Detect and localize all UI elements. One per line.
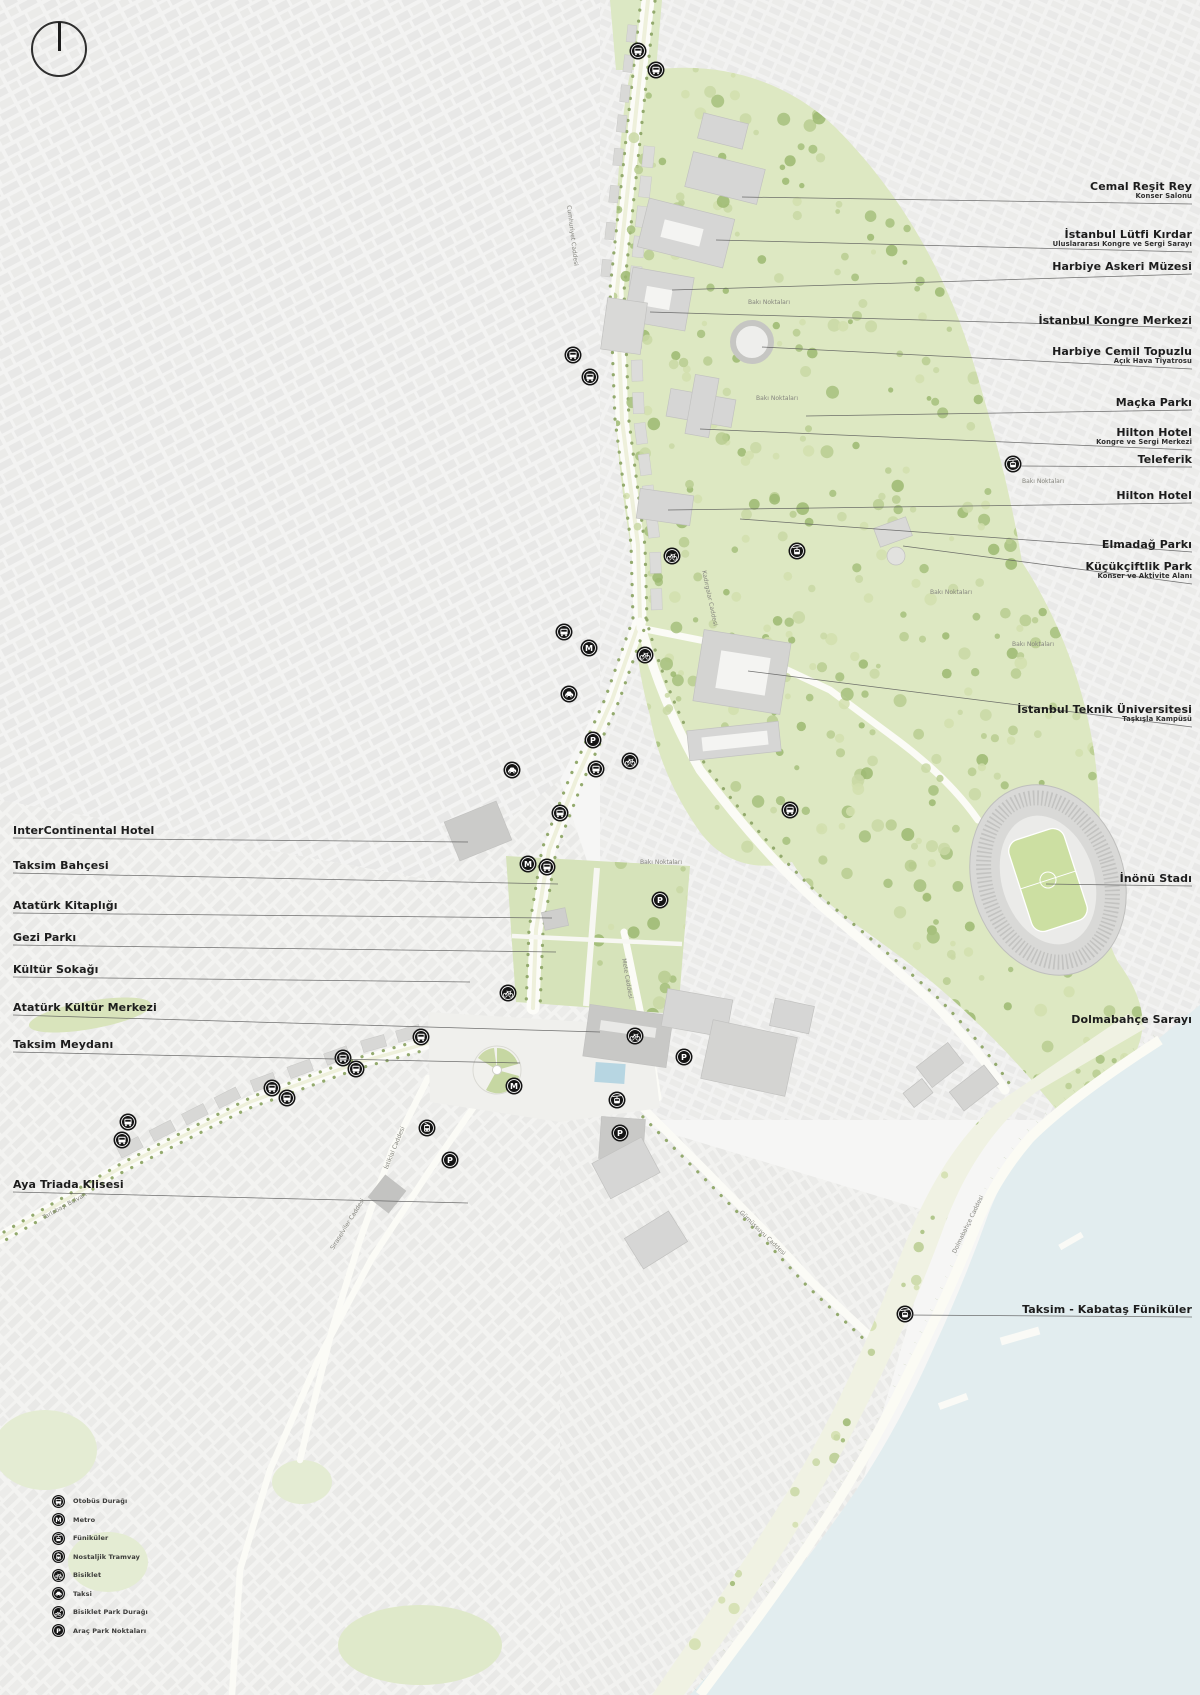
- tree: [790, 1487, 800, 1497]
- tree: [780, 165, 786, 171]
- marker-bus-icon: [556, 624, 573, 641]
- tree: [948, 584, 958, 594]
- tree: [670, 671, 676, 677]
- tree: [981, 501, 990, 510]
- tree: [644, 250, 655, 261]
- tree: [886, 819, 897, 830]
- tree: [671, 622, 683, 634]
- tree: [665, 693, 670, 698]
- tree: [928, 785, 939, 796]
- tree: [905, 860, 917, 872]
- tree: [841, 1438, 845, 1442]
- tree: [852, 783, 864, 795]
- tree: [812, 1458, 820, 1466]
- tree: [958, 647, 970, 659]
- legend-label: Taksi: [73, 1590, 92, 1598]
- tree: [773, 616, 783, 626]
- tree: [923, 893, 932, 902]
- tree: [825, 633, 837, 645]
- legend-tram-icon: [52, 1550, 65, 1563]
- tree: [1001, 781, 1009, 789]
- tree: [914, 879, 927, 892]
- tree: [903, 225, 910, 232]
- tree: [892, 480, 904, 492]
- tree: [913, 942, 921, 950]
- tree: [773, 322, 780, 329]
- marker-parking-icon: [612, 1125, 629, 1142]
- tree: [868, 1349, 875, 1356]
- tree: [800, 436, 806, 442]
- legend-item-bike: Bisiklet: [52, 1566, 148, 1585]
- building: [634, 422, 648, 444]
- building: [626, 25, 637, 43]
- tree: [753, 130, 759, 136]
- tree: [841, 688, 854, 701]
- tree: [665, 704, 673, 712]
- legend-item-bikepark: Bisiklet Park Durağı: [52, 1603, 148, 1622]
- tree: [835, 672, 844, 681]
- north-needle: [58, 22, 61, 51]
- tree: [920, 1230, 924, 1234]
- tree: [792, 1522, 798, 1528]
- tree: [883, 879, 892, 888]
- tree: [826, 386, 839, 399]
- tree: [911, 843, 918, 850]
- tree: [1042, 1041, 1054, 1053]
- tree: [894, 694, 907, 707]
- tree: [794, 765, 799, 770]
- tree: [742, 535, 750, 543]
- tree: [931, 398, 939, 406]
- marker-metro-icon: [506, 1078, 523, 1095]
- tree: [800, 366, 811, 377]
- tree: [682, 372, 691, 381]
- tree: [790, 511, 797, 518]
- tree: [693, 495, 702, 504]
- tree: [855, 575, 863, 583]
- tree: [793, 211, 802, 220]
- tree: [914, 1285, 920, 1291]
- tree: [865, 320, 877, 332]
- tree: [660, 657, 673, 670]
- tree: [777, 341, 782, 346]
- legend-parking-icon: [52, 1624, 65, 1637]
- tree: [718, 1597, 725, 1604]
- tree: [731, 592, 741, 602]
- tree: [798, 143, 805, 150]
- tree: [894, 505, 903, 514]
- building: [650, 552, 662, 573]
- tree: [750, 442, 761, 453]
- marker-funicular-icon: [789, 543, 806, 560]
- tree: [937, 407, 948, 418]
- tree: [1076, 1069, 1081, 1074]
- tree: [846, 807, 855, 816]
- tree: [964, 687, 972, 695]
- tree: [817, 662, 827, 672]
- legend-item-tram: Nostaljik Tramvay: [52, 1548, 148, 1567]
- tree: [681, 90, 690, 99]
- tree: [723, 589, 730, 596]
- tree: [911, 579, 920, 588]
- marker-funicular-icon: [897, 1306, 914, 1323]
- tree: [979, 975, 985, 981]
- tree: [903, 467, 910, 474]
- tree: [793, 611, 806, 624]
- tree: [944, 719, 954, 729]
- building: [623, 55, 634, 73]
- tree: [735, 232, 740, 237]
- tree: [968, 767, 977, 776]
- tree: [924, 593, 936, 605]
- tree: [741, 509, 752, 520]
- tree: [902, 260, 907, 265]
- tree: [841, 253, 849, 261]
- marker-bus-icon: [582, 369, 599, 386]
- building: [616, 115, 627, 133]
- tree: [732, 546, 739, 553]
- tree: [1075, 749, 1083, 757]
- marker-bus-icon: [648, 62, 665, 79]
- marker-taxi-icon: [561, 686, 578, 703]
- tree: [929, 799, 936, 806]
- tree: [1072, 712, 1080, 720]
- tree: [834, 269, 841, 276]
- building: [642, 146, 655, 168]
- tree: [971, 668, 979, 676]
- marker-parking-icon: [652, 892, 669, 909]
- tree: [829, 490, 836, 497]
- tree: [697, 330, 705, 338]
- tree: [1008, 726, 1018, 736]
- tree: [975, 578, 984, 587]
- marker-metro-icon: [581, 640, 598, 657]
- tree: [915, 374, 924, 383]
- tree: [1034, 730, 1042, 738]
- tree: [858, 299, 867, 308]
- marker-bike-icon: [664, 548, 681, 565]
- tree: [783, 572, 792, 581]
- tree: [958, 710, 963, 715]
- tree: [608, 924, 614, 930]
- tree: [964, 947, 973, 956]
- building: [638, 454, 652, 476]
- site-plan-map: M: [0, 0, 1200, 1695]
- tree: [778, 531, 788, 541]
- tree: [942, 669, 952, 679]
- tree: [894, 906, 906, 918]
- tree: [808, 145, 817, 154]
- tree: [980, 709, 992, 721]
- tree: [1007, 648, 1018, 659]
- marker-bus-icon: [279, 1090, 296, 1107]
- tree: [901, 1283, 906, 1288]
- tree: [876, 664, 881, 669]
- tree: [841, 868, 852, 879]
- marker-bus-icon: [120, 1114, 137, 1131]
- legend-label: Bisiklet Park Durağı: [73, 1608, 148, 1616]
- tree: [836, 201, 843, 208]
- marker-bus-icon: [114, 1132, 131, 1149]
- tree: [860, 522, 869, 531]
- marker-bus-icon: [782, 802, 799, 819]
- tree: [947, 950, 956, 959]
- tree: [658, 971, 671, 984]
- tree: [653, 996, 666, 1009]
- tree: [827, 730, 836, 739]
- marker-metro-icon: [520, 856, 537, 873]
- tree: [916, 277, 925, 286]
- tree: [869, 729, 875, 735]
- tree: [848, 319, 853, 324]
- tree: [949, 536, 954, 541]
- tree: [1088, 772, 1097, 781]
- tree: [910, 506, 916, 512]
- tree: [1020, 615, 1032, 627]
- tree: [953, 881, 964, 892]
- tree: [941, 1171, 948, 1178]
- marker-tram-icon: [419, 1120, 436, 1137]
- tree: [1045, 712, 1052, 719]
- legend-label: Nostaljik Tramvay: [73, 1553, 140, 1561]
- tree: [901, 828, 914, 841]
- building: [633, 392, 645, 413]
- tree: [805, 518, 814, 527]
- legend-item-taxi: Taksi: [52, 1585, 148, 1604]
- tree: [757, 255, 766, 264]
- building-acik-hava-tiyatrosu: [733, 323, 771, 361]
- tree: [709, 620, 718, 629]
- legend-item-metro: Metro: [52, 1511, 148, 1530]
- tree: [1011, 668, 1022, 679]
- tree: [795, 344, 803, 352]
- tree: [981, 733, 987, 739]
- legend-label: Füniküler: [73, 1534, 108, 1542]
- tree: [952, 825, 960, 833]
- tree: [911, 1275, 922, 1286]
- tree: [942, 632, 949, 639]
- marker-parking-icon: [676, 1049, 693, 1066]
- tree: [777, 113, 790, 126]
- tree: [900, 611, 906, 617]
- tree: [922, 357, 931, 366]
- tree: [715, 805, 720, 810]
- tree: [706, 284, 714, 292]
- tree: [926, 840, 938, 852]
- tree: [805, 425, 812, 432]
- tree: [876, 549, 887, 560]
- tree: [872, 819, 885, 832]
- legend-bikepark-icon: [52, 1606, 65, 1619]
- tree: [1104, 1005, 1116, 1017]
- tree: [913, 729, 924, 740]
- tree: [1039, 608, 1047, 616]
- tree: [1032, 617, 1038, 623]
- tree: [716, 432, 729, 445]
- tree: [973, 613, 981, 621]
- tree: [749, 499, 760, 510]
- building: [613, 148, 624, 166]
- tree: [919, 564, 928, 573]
- tree: [676, 696, 682, 702]
- tree: [597, 960, 603, 966]
- tree: [634, 523, 642, 531]
- tree: [859, 722, 865, 728]
- tree: [817, 826, 824, 833]
- tree: [837, 512, 847, 522]
- tree: [859, 659, 868, 668]
- tree: [978, 523, 985, 530]
- tree: [1016, 625, 1023, 632]
- tree: [685, 480, 694, 489]
- tree: [991, 734, 999, 742]
- tree: [730, 1581, 735, 1586]
- building: [639, 176, 652, 198]
- tree: [752, 795, 764, 807]
- tree: [659, 158, 667, 166]
- tree: [852, 442, 859, 449]
- transit-legend: Otobüs DurağıMetroFünikülerNostaljik Tra…: [52, 1492, 148, 1640]
- tree: [966, 422, 975, 431]
- tree: [1004, 1002, 1012, 1010]
- tree: [839, 823, 846, 830]
- tree: [647, 917, 660, 930]
- tree: [936, 775, 943, 782]
- building: [651, 589, 663, 610]
- tree: [646, 92, 652, 98]
- tree: [988, 544, 999, 555]
- tree: [821, 445, 834, 458]
- tree: [888, 387, 893, 392]
- tree: [770, 807, 777, 814]
- tree: [628, 926, 640, 938]
- tree: [833, 1434, 840, 1441]
- tree: [648, 418, 661, 431]
- tree: [676, 192, 685, 201]
- tree: [774, 273, 784, 283]
- tree: [803, 445, 814, 456]
- tree: [965, 922, 975, 932]
- building-kongre-merkezi: [601, 297, 648, 354]
- legend-funicular-icon: [52, 1532, 65, 1545]
- tree: [919, 636, 926, 643]
- building: [609, 185, 620, 203]
- tree: [1065, 1083, 1072, 1090]
- tree: [1000, 608, 1011, 619]
- tree: [671, 351, 680, 360]
- tree: [962, 502, 973, 513]
- tree: [676, 886, 683, 893]
- tree: [782, 178, 789, 185]
- tree: [642, 335, 652, 345]
- tree: [851, 274, 859, 282]
- tree: [669, 359, 679, 369]
- tree: [995, 634, 1000, 639]
- tree: [838, 321, 849, 332]
- legend-bus-icon: [52, 1495, 65, 1508]
- tree: [741, 841, 753, 853]
- pool: [594, 1062, 625, 1084]
- legend-taxi-icon: [52, 1587, 65, 1600]
- tree: [886, 245, 898, 257]
- tree: [782, 837, 790, 845]
- tree: [969, 788, 981, 800]
- tree: [870, 669, 880, 679]
- tree: [809, 663, 816, 670]
- tree: [867, 234, 874, 241]
- tree: [867, 756, 878, 767]
- tree: [943, 977, 951, 985]
- tree: [938, 843, 950, 855]
- marker-bus-icon: [552, 805, 569, 822]
- tree: [729, 1603, 740, 1614]
- tree: [785, 693, 791, 699]
- marker-bus-icon: [264, 1080, 281, 1097]
- legend-label: Metro: [73, 1516, 95, 1524]
- marker-parking-icon: [442, 1152, 459, 1169]
- tree: [974, 395, 983, 404]
- tree: [885, 218, 894, 227]
- building-kucukciftlik: [887, 547, 905, 565]
- marker-parking-icon: [585, 732, 602, 749]
- tree: [797, 722, 806, 731]
- tree: [703, 356, 712, 365]
- marker-funicular-icon: [609, 1092, 626, 1109]
- marker-bike-icon: [637, 647, 654, 664]
- marker-bus-icon: [539, 859, 556, 876]
- legend-item-parking: Araç Park Noktaları: [52, 1622, 148, 1641]
- marker-bus-icon: [335, 1050, 352, 1067]
- tree: [763, 625, 771, 633]
- tree: [730, 781, 741, 792]
- tree: [921, 763, 931, 773]
- tree: [629, 132, 640, 143]
- tree: [769, 494, 780, 505]
- tree: [1007, 736, 1016, 745]
- tree: [820, 633, 827, 640]
- basemap-graphic: M: [0, 0, 1200, 1695]
- tree: [994, 773, 1001, 780]
- marker-bus-icon: [588, 761, 605, 778]
- building: [631, 360, 643, 381]
- tree: [850, 652, 859, 661]
- tree: [818, 855, 827, 864]
- legend-label: Bisiklet: [73, 1571, 101, 1579]
- building: [601, 259, 612, 277]
- tree: [892, 495, 901, 504]
- tree: [984, 488, 991, 495]
- marker-bus-icon: [348, 1061, 365, 1078]
- legend-bike-icon: [52, 1569, 65, 1582]
- tree: [885, 467, 892, 474]
- tree: [785, 618, 794, 627]
- tree: [914, 1242, 924, 1252]
- tree: [852, 311, 862, 321]
- tree: [873, 499, 884, 510]
- building: [620, 85, 631, 103]
- tree: [933, 367, 939, 373]
- tree: [835, 734, 844, 743]
- tree: [1064, 986, 1075, 997]
- tree: [627, 225, 636, 234]
- tree: [802, 807, 810, 815]
- tree: [927, 396, 932, 401]
- tree: [1030, 637, 1041, 648]
- tree: [799, 183, 804, 188]
- tree: [835, 209, 840, 214]
- tree: [785, 155, 796, 166]
- tree: [864, 593, 874, 603]
